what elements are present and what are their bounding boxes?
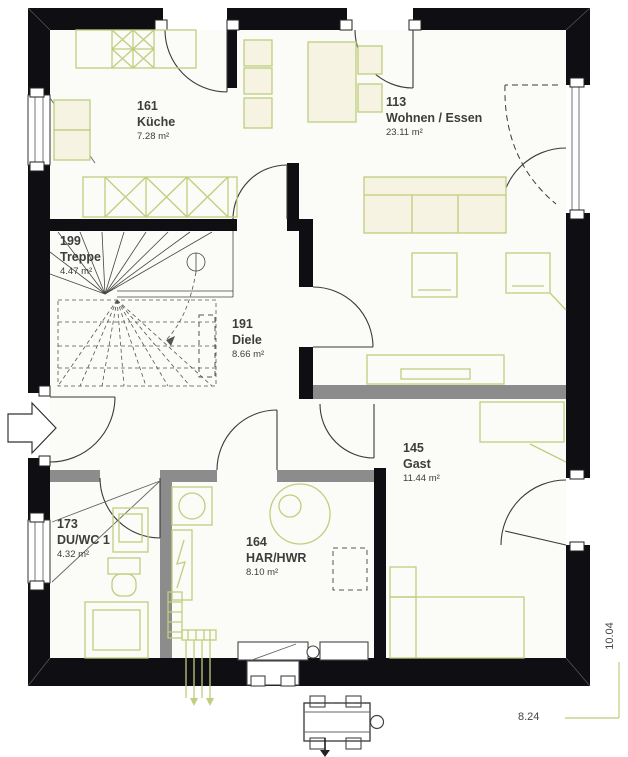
direction-arrow-icon: [320, 750, 330, 757]
dining-chair: [358, 46, 382, 74]
room-label-kueche: 161 Küche 7.28 m²: [137, 98, 175, 143]
room-area: 4.47 m²: [60, 266, 101, 278]
room-number: 199: [60, 233, 101, 249]
connection-arrow-icon: [190, 698, 198, 706]
kitchen-cabinet: [54, 130, 90, 160]
bath-window: [28, 513, 50, 590]
room-name: Wohnen / Essen: [386, 110, 482, 126]
tall-cabinet: [244, 98, 272, 128]
room-area: 7.28 m²: [137, 131, 175, 143]
dimension-width: 8.24: [518, 711, 539, 723]
tall-cabinet: [244, 40, 272, 66]
room-label-har: 164 HAR/HWR 8.10 m²: [246, 534, 306, 579]
room-number: 173: [57, 516, 110, 532]
connection-arrow-icon: [206, 698, 214, 706]
room-name: Treppe: [60, 249, 101, 265]
room-label-treppe: 199 Treppe 4.47 m²: [60, 233, 101, 278]
kitchen-cabinet: [54, 100, 90, 130]
room-number: 161: [137, 98, 175, 114]
room-number: 145: [403, 440, 440, 456]
room-number: 164: [246, 534, 306, 550]
room-number: 113: [386, 94, 482, 110]
appliance: [320, 642, 368, 660]
room-area: 8.10 m²: [246, 567, 306, 579]
room-label-gast: 145 Gast 11.44 m²: [403, 440, 440, 485]
appliance: [238, 642, 308, 660]
room-name: Küche: [137, 114, 175, 130]
room-name: Gast: [403, 456, 440, 472]
room-area: 8.66 m²: [232, 349, 264, 361]
room-label-duwc: 173 DU/WC 1 4.32 m²: [57, 516, 110, 561]
room-name: HAR/HWR: [246, 550, 306, 566]
room-area: 23.11 m²: [386, 127, 482, 139]
vehicle-icon: [304, 696, 384, 757]
chimney: [247, 661, 299, 686]
floor-plan-svg: [0, 0, 628, 757]
room-name: DU/WC 1: [57, 532, 110, 548]
dining-chair: [358, 84, 382, 112]
appliance-knob: [307, 646, 319, 658]
room-area: 11.44 m²: [403, 473, 440, 485]
entrance-arrow-icon: [8, 403, 56, 453]
room-label-wohnen: 113 Wohnen / Essen 23.11 m²: [386, 94, 482, 139]
sofa: [364, 177, 506, 233]
room-number: 191: [232, 316, 264, 332]
room-name: Diele: [232, 332, 264, 348]
dining-table: [308, 42, 356, 122]
floor-plan: 161 Küche 7.28 m² 113 Wohnen / Essen 23.…: [0, 0, 628, 757]
room-area: 4.32 m²: [57, 549, 110, 561]
tall-cabinet: [244, 68, 272, 94]
floor-area: [50, 30, 566, 658]
kitchen-window: [28, 88, 50, 171]
room-label-diele: 191 Diele 8.66 m²: [232, 316, 264, 361]
dimension-height: 10.04: [604, 622, 616, 650]
